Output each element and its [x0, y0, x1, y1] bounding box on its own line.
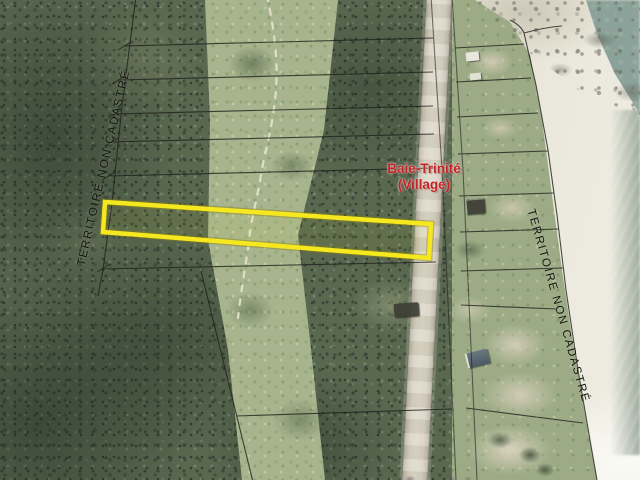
- shore-boundary-top-bend: [524, 26, 562, 33]
- trail-dashed-path: [238, 0, 277, 318]
- parcel-lines-east: [455, 44, 583, 423]
- shore-boundary-line: [510, 20, 597, 480]
- village-label-line1: Baie-Trinité: [387, 161, 461, 177]
- aerial-cadastral-map: TERRITOIRE NON CADASTRÉ TERRITOIRE NON C…: [0, 0, 640, 480]
- cropped-watermark: [398, 474, 478, 480]
- village-label-line2: (Village): [387, 177, 461, 193]
- village-label: Baie-Trinité (Village): [387, 161, 461, 193]
